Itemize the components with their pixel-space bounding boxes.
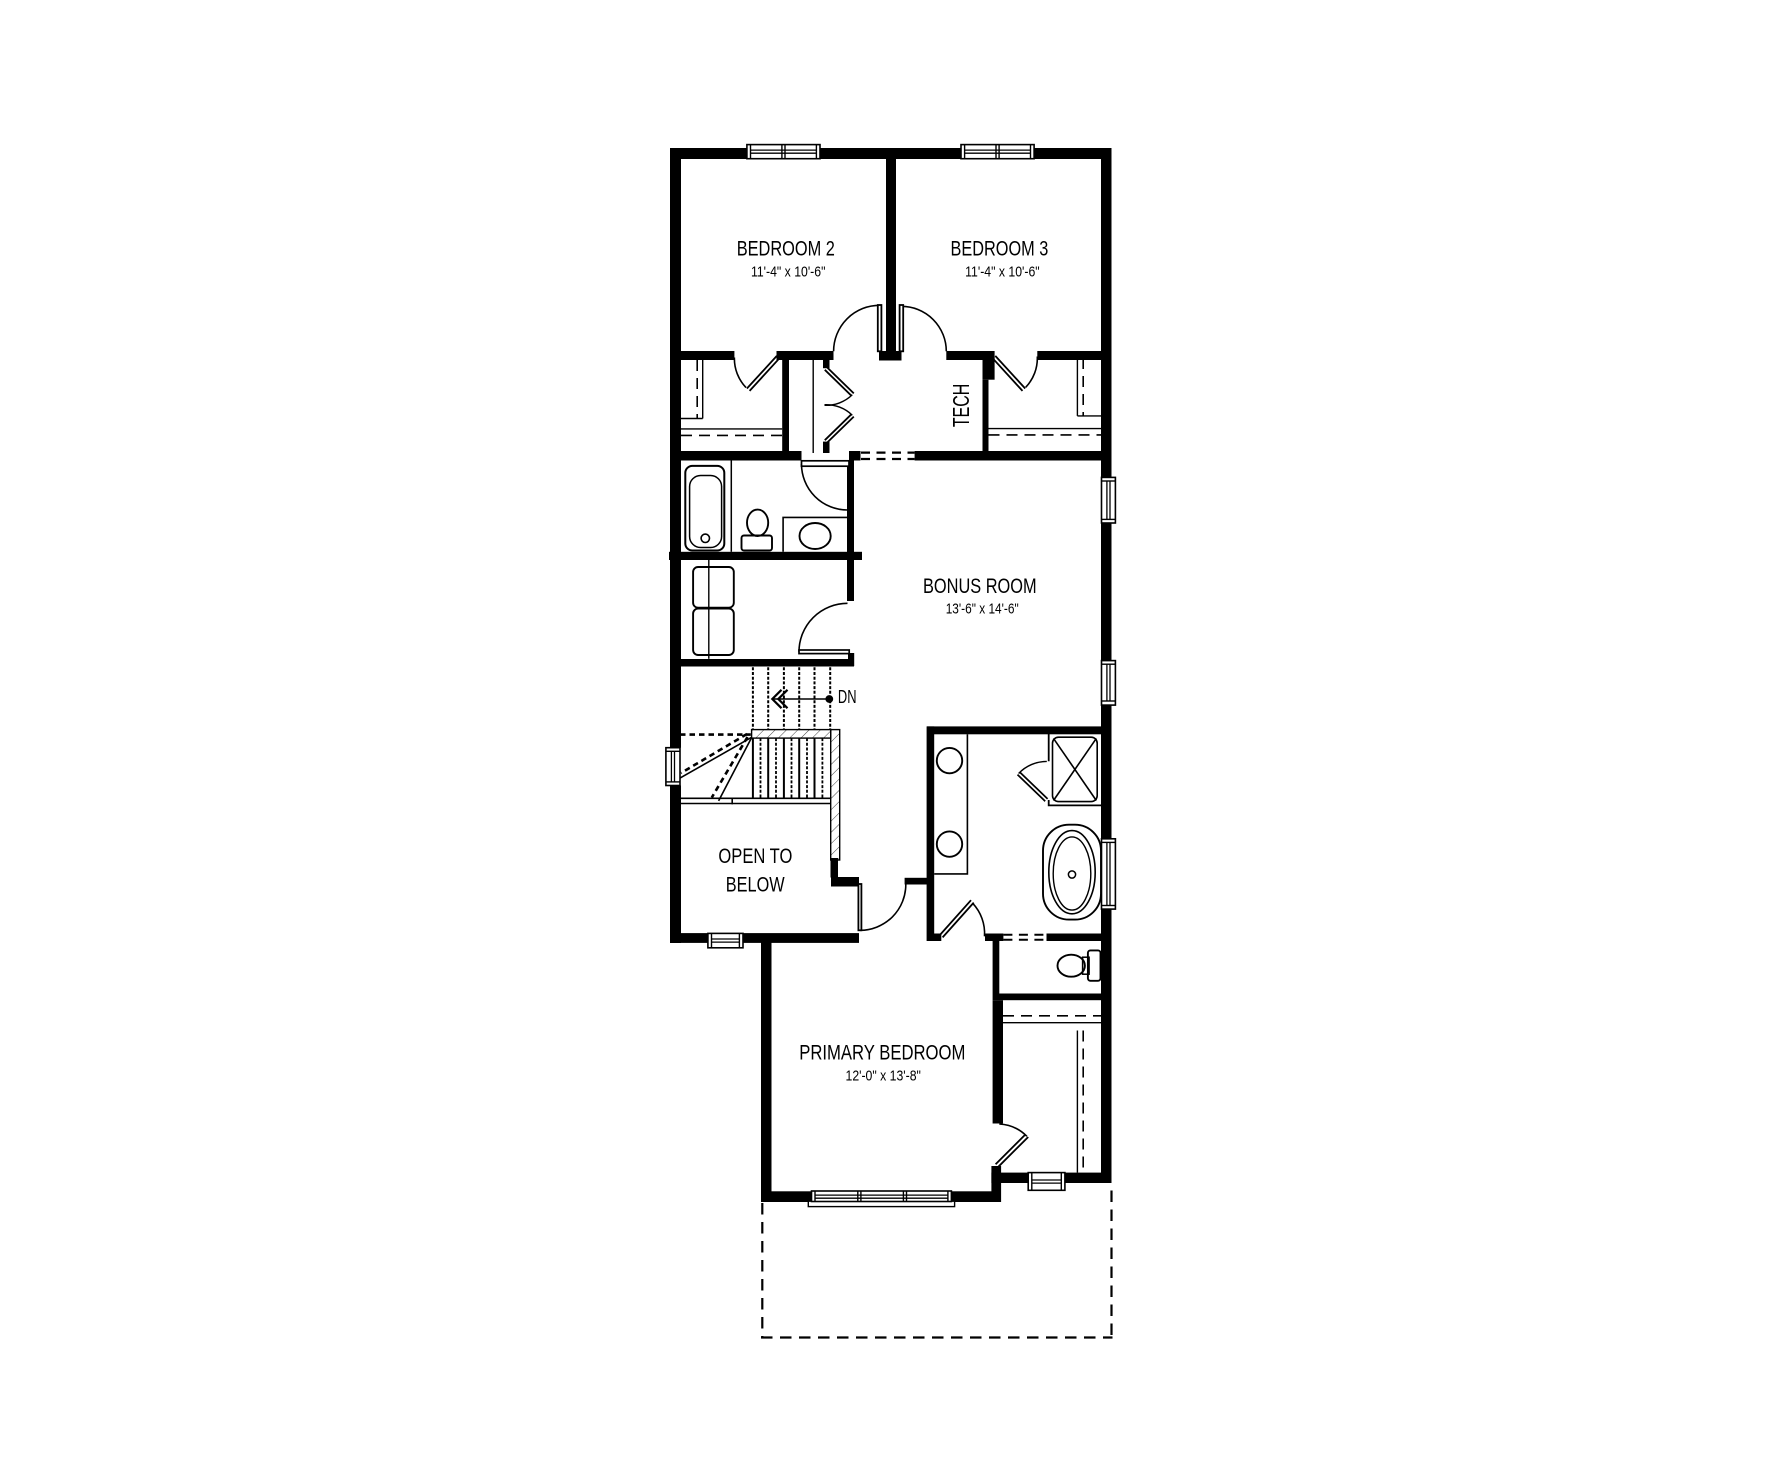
svg-text:BEDROOM 3: BEDROOM 3 — [951, 237, 1049, 260]
svg-text:BEDROOM 2: BEDROOM 2 — [737, 237, 835, 260]
svg-text:13'-6" x 14'-6": 13'-6" x 14'-6" — [946, 600, 1019, 617]
svg-text:TECH: TECH — [948, 384, 974, 428]
svg-text:PRIMARY BEDROOM: PRIMARY BEDROOM — [799, 1042, 965, 1065]
svg-text:DN: DN — [838, 687, 857, 707]
svg-text:BELOW: BELOW — [726, 873, 785, 896]
svg-text:BONUS ROOM: BONUS ROOM — [923, 575, 1037, 598]
svg-text:OPEN TO: OPEN TO — [718, 845, 792, 868]
svg-text:11'-4" x 10'-6": 11'-4" x 10'-6" — [751, 264, 826, 281]
svg-text:12'-0" x 13'-8": 12'-0" x 13'-8" — [846, 1068, 921, 1085]
svg-text:11'-4" x 10'-6": 11'-4" x 10'-6" — [965, 264, 1040, 281]
